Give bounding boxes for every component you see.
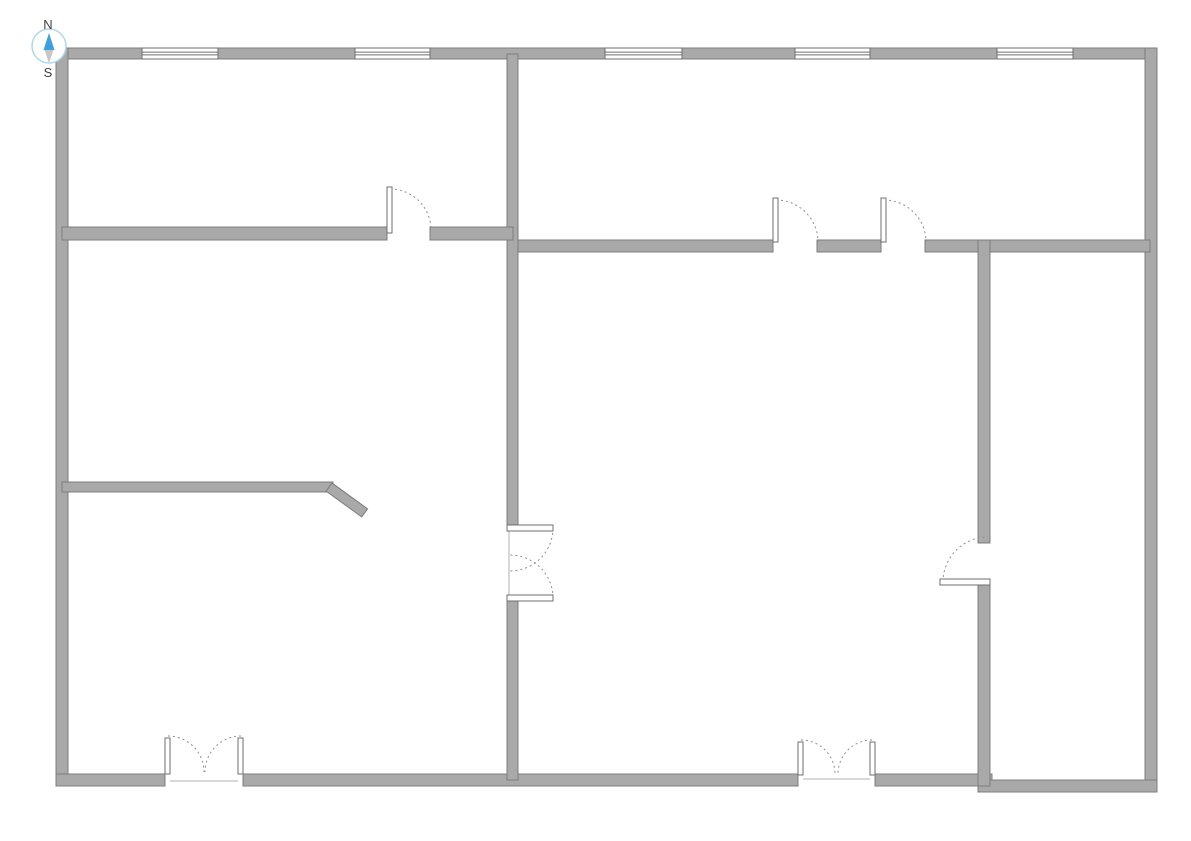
window: [997, 48, 1073, 59]
interior-wall-right-vertical-lower: [978, 585, 990, 786]
exterior-wall-right: [1145, 48, 1157, 792]
door-leaf: [238, 738, 243, 774]
door-leaf: [881, 198, 886, 242]
exterior-wall-bottom-b: [243, 774, 798, 786]
exterior-wall-left: [56, 48, 68, 786]
interior-wall-angled-stub: [326, 483, 367, 517]
window: [795, 48, 870, 59]
interior-wall-center-vertical-lower: [507, 600, 518, 780]
compass-north-label: N: [43, 17, 52, 32]
door-leaf: [507, 595, 553, 601]
interior-wall-right-divider-b: [817, 240, 881, 252]
door-leaf: [387, 187, 392, 233]
window: [142, 48, 218, 59]
interior-wall-left-divider-b: [430, 227, 513, 240]
door-swing-arc: [205, 736, 241, 772]
door-leaf: [870, 742, 875, 775]
window: [605, 48, 682, 59]
door-swing-arc: [510, 528, 553, 571]
interior-wall-right-vertical-upper: [978, 240, 990, 543]
door-swing-arc: [801, 740, 835, 774]
interior-wall-right-divider-a: [518, 240, 773, 252]
door-swing-arc: [390, 189, 431, 230]
door-leaf: [940, 579, 990, 585]
door-leaf: [507, 525, 553, 531]
compass-south-label: S: [44, 65, 53, 80]
door-swing-arc: [943, 537, 988, 582]
door-leaf: [798, 742, 803, 775]
door-swing-arc: [884, 200, 926, 242]
window: [355, 48, 430, 59]
floor-plan-canvas: N S: [0, 0, 1191, 841]
door-leaf: [165, 738, 170, 774]
interior-wall-left-divider-a: [62, 227, 387, 240]
exterior-wall-bottom-c: [875, 774, 992, 786]
exterior-wall-bottom-a: [56, 774, 165, 786]
door-leaf: [773, 198, 778, 242]
interior-wall-right-divider-c: [925, 240, 1150, 252]
exterior-wall-bottom-d: [978, 780, 1157, 792]
interior-wall-partial-left: [62, 482, 333, 492]
door-swing-arc: [510, 555, 553, 598]
walls-layer: [56, 48, 1157, 792]
door-swing-arc: [168, 736, 204, 772]
floor-plan-viewer: N S: [0, 0, 1191, 841]
door-swing-arc: [776, 200, 818, 242]
interior-wall-center-vertical-upper: [507, 54, 518, 525]
door-swing-arc: [838, 740, 872, 774]
